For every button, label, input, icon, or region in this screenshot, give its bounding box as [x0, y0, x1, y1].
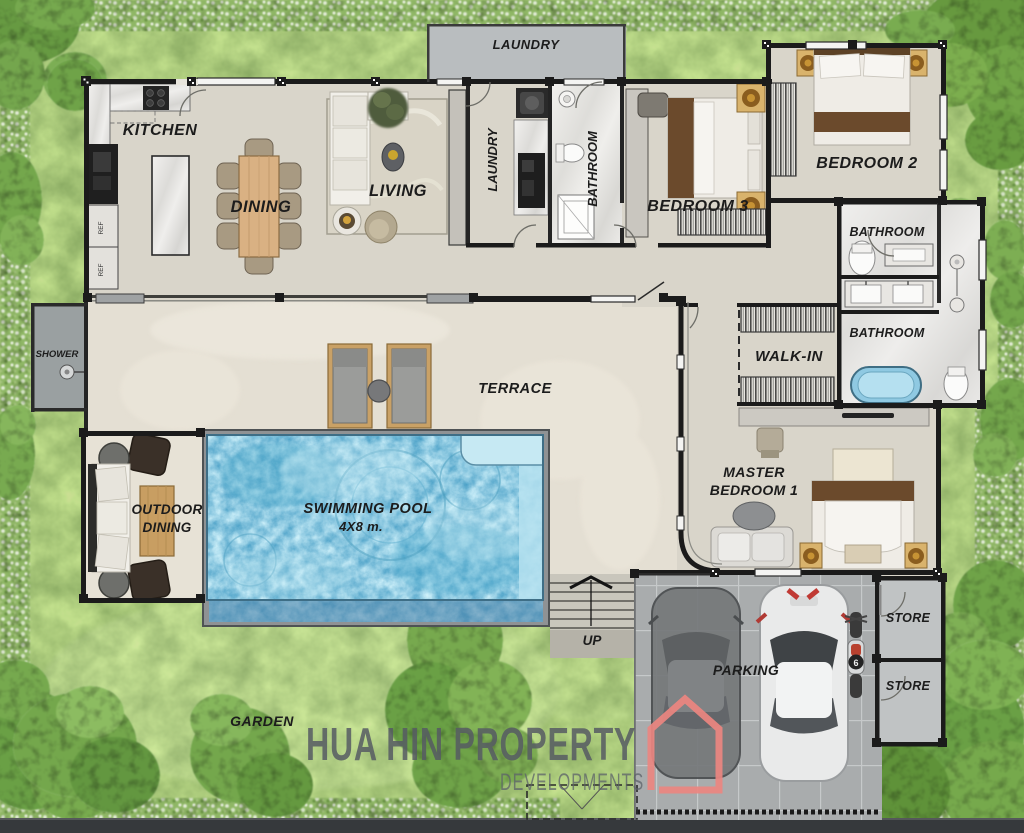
svg-text:GARDEN: GARDEN [230, 713, 294, 729]
svg-text:REF: REF [98, 263, 105, 276]
svg-text:DEVELOPMENTS: DEVELOPMENTS [500, 770, 644, 796]
svg-text:BATHROOM: BATHROOM [585, 130, 600, 207]
svg-text:SWIMMING POOL: SWIMMING POOL [304, 501, 433, 517]
svg-text:BEDROOM 2: BEDROOM 2 [816, 155, 917, 172]
svg-text:PARKING: PARKING [713, 662, 779, 678]
svg-text:TERRACE: TERRACE [478, 381, 552, 397]
svg-text:DINING: DINING [231, 198, 292, 216]
svg-text:LAUNDRY: LAUNDRY [485, 127, 500, 192]
svg-text:OUTDOOR: OUTDOOR [131, 502, 202, 517]
svg-text:BEDROOM 3: BEDROOM 3 [647, 198, 748, 215]
svg-text:REF: REF [98, 221, 105, 234]
svg-text:STORE: STORE [886, 679, 931, 693]
svg-text:LAUNDRY: LAUNDRY [493, 37, 561, 52]
svg-text:SHOWER: SHOWER [36, 349, 79, 360]
svg-text:DINING: DINING [142, 520, 191, 535]
svg-text:6: 6 [853, 658, 858, 668]
svg-text:HUA HIN PROPERTY: HUA HIN PROPERTY [306, 719, 636, 770]
svg-text:UP: UP [583, 633, 603, 648]
svg-text:MASTER: MASTER [723, 464, 785, 480]
svg-text:BEDROOM 1: BEDROOM 1 [710, 482, 798, 498]
svg-text:KITCHEN: KITCHEN [123, 122, 198, 139]
svg-text:LIVING: LIVING [369, 182, 427, 200]
svg-text:BATHROOM: BATHROOM [849, 225, 924, 239]
svg-text:WALK-IN: WALK-IN [755, 348, 823, 365]
svg-text:STORE: STORE [886, 611, 931, 625]
svg-text:BATHROOM: BATHROOM [849, 326, 924, 340]
svg-text:4X8 m.: 4X8 m. [338, 519, 383, 534]
